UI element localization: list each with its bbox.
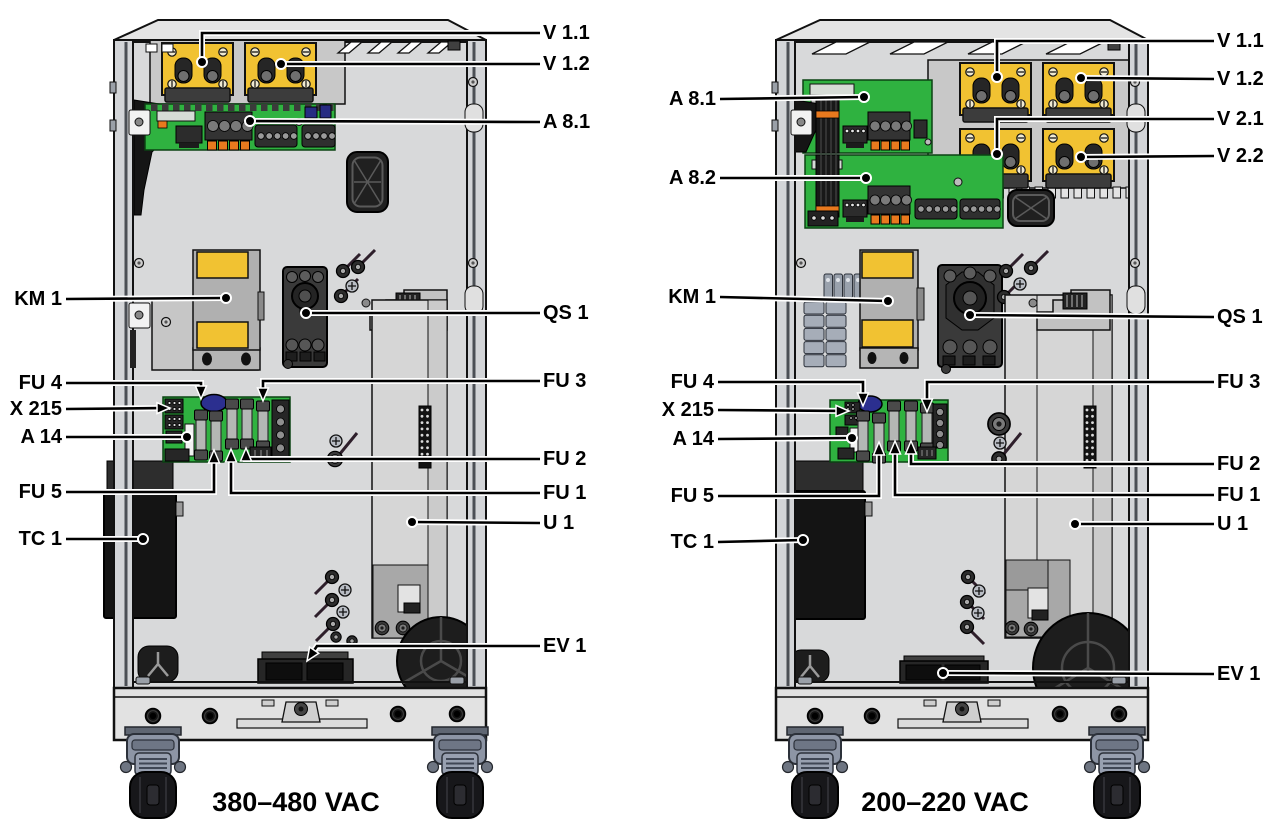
- leader-line: [718, 438, 852, 439]
- leader-line: [1081, 78, 1214, 79]
- figure-cabinet-380-480: [104, 20, 493, 818]
- leader-dot: [1070, 519, 1080, 529]
- leader-dot: [859, 92, 869, 102]
- callout-label-a-8.1: A 8.1: [669, 88, 716, 110]
- callout-label-u-1: U 1: [1217, 513, 1248, 535]
- leader-dot: [221, 293, 231, 303]
- leader-dot: [1076, 152, 1086, 162]
- callout-label-v-1.2: V 1.2: [543, 53, 590, 75]
- callout-label-fu-4: FU 4: [671, 371, 715, 393]
- connector: [915, 199, 957, 219]
- fuse: [257, 401, 270, 451]
- callout-label-fu-3: FU 3: [1217, 371, 1260, 393]
- connector-x215: [165, 415, 183, 429]
- leader-dot: [883, 296, 893, 306]
- leader-dot: [992, 72, 1002, 82]
- callout-label-qs-1: QS 1: [543, 302, 589, 324]
- leader-line: [66, 298, 226, 299]
- callout-label-fu-5: FU 5: [671, 485, 714, 507]
- callout-label-v-1.1: V 1.1: [1217, 30, 1264, 52]
- callout-label-v-2.1: V 2.1: [1217, 108, 1264, 130]
- connector: [176, 126, 202, 148]
- fuse-board-a14: [163, 395, 290, 463]
- wall-cutout: [465, 286, 483, 314]
- fuse: [195, 410, 208, 460]
- leader-dot: [992, 149, 1002, 159]
- leader-dot: [138, 534, 148, 544]
- fuse: [857, 411, 870, 461]
- leader-line: [718, 410, 839, 411]
- callout-label-u-1: U 1: [543, 512, 574, 534]
- control-board-a8-1: [795, 80, 932, 153]
- cable-grommet: [347, 152, 388, 212]
- callout-label-km-1: KM 1: [14, 288, 62, 310]
- caster: [783, 727, 848, 818]
- leader-dot: [938, 668, 948, 678]
- callout-label-x-215: X 215: [662, 399, 714, 421]
- connector: [305, 107, 317, 118]
- callout-label-x-215: X 215: [10, 398, 62, 420]
- leader-dot: [965, 310, 975, 320]
- callout-label-a-14: A 14: [20, 426, 62, 448]
- connector: [808, 211, 838, 226]
- callout-label-km-1: KM 1: [668, 286, 716, 308]
- control-board-a8-2: [805, 155, 1003, 228]
- inverter-u1: [372, 300, 447, 638]
- figure-cabinet-200-220: [772, 20, 1150, 818]
- caster: [428, 727, 493, 818]
- leader-dot: [798, 535, 808, 545]
- leader-dot: [276, 59, 286, 69]
- caster: [121, 727, 186, 818]
- leader-dot: [301, 308, 311, 318]
- callout-label-ev-1: EV 1: [1217, 663, 1260, 685]
- leader-dot: [182, 432, 192, 442]
- callout-label-fu-1: FU 1: [543, 482, 586, 504]
- callout-label-fu-2: FU 2: [1217, 453, 1260, 475]
- caption-200-220: 200–220 VAC: [861, 787, 1029, 817]
- callout-label-fu-5: FU 5: [19, 481, 62, 503]
- leader-line: [412, 522, 540, 523]
- callout-label-a-8.1: A 8.1: [543, 111, 590, 133]
- callout-label-fu-3: FU 3: [543, 370, 586, 392]
- leader-dot: [847, 433, 857, 443]
- callout-label-fu-2: FU 2: [543, 448, 586, 470]
- leader-dot: [197, 57, 207, 67]
- callout-label-v-2.2: V 2.2: [1217, 145, 1264, 167]
- wall-cutout: [465, 104, 483, 132]
- callout-label-tc-1: TC 1: [671, 531, 714, 553]
- roof: [776, 20, 1148, 40]
- callout-label-a-14: A 14: [672, 428, 714, 450]
- callout-label-a-8.2: A 8.2: [669, 167, 716, 189]
- connector-x215: [165, 399, 183, 413]
- caption-380-480: 380–480 VAC: [212, 787, 380, 817]
- callout-label-v-1.1: V 1.1: [543, 22, 590, 44]
- leader-line: [1081, 156, 1214, 157]
- connector: [302, 125, 335, 147]
- callout-label-tc-1: TC 1: [19, 528, 62, 550]
- fuse: [226, 399, 239, 449]
- power-module-v1-2: [1043, 63, 1114, 122]
- callout-label-qs-1: QS 1: [1217, 306, 1263, 328]
- contactor-km1: [860, 250, 924, 368]
- connector: [255, 125, 297, 147]
- caster: [1085, 727, 1150, 818]
- callout-label-fu-1: FU 1: [1217, 484, 1260, 506]
- leader-line: [250, 121, 540, 122]
- cabinet-diagram-canvas: 380–480 VAC 200–220 VAC V 1.1V 1.2A 8.1Q…: [0, 0, 1280, 832]
- power-module-assembly: [150, 40, 345, 104]
- connector: [320, 105, 331, 118]
- wall-cutout: [1127, 286, 1145, 314]
- leader-line: [943, 673, 1214, 674]
- capacitor: [201, 395, 227, 412]
- connector: [960, 199, 1000, 219]
- leader-dot: [1076, 73, 1086, 83]
- callout-label-v-1.2: V 1.2: [1217, 68, 1264, 90]
- leader-dot: [245, 116, 255, 126]
- leader-line: [66, 408, 160, 409]
- fuse: [241, 399, 254, 449]
- callout-label-ev-1: EV 1: [543, 635, 586, 657]
- cable-grommet: [1008, 190, 1054, 226]
- callout-label-fu-4: FU 4: [19, 372, 63, 394]
- fan-ev1: [258, 652, 353, 683]
- power-module-v1-2: [245, 43, 316, 102]
- leader-line: [246, 458, 540, 459]
- leader-dot: [407, 517, 417, 527]
- leader-dot: [861, 173, 871, 183]
